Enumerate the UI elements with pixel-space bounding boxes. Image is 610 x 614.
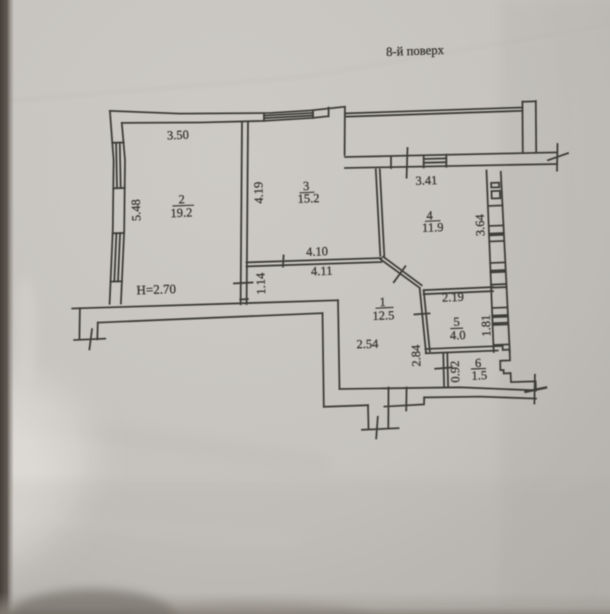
svg-text:3.64: 3.64: [473, 213, 488, 236]
svg-text:3.41: 3.41: [415, 173, 437, 188]
svg-text:2.84: 2.84: [409, 344, 424, 367]
svg-text:3.50: 3.50: [167, 128, 189, 143]
svg-text:H=2.70: H=2.70: [136, 281, 176, 297]
svg-text:4.0: 4.0: [450, 328, 466, 343]
svg-text:2: 2: [178, 192, 185, 206]
svg-text:1.5: 1.5: [471, 368, 487, 383]
svg-text:8-й поверх: 8-й поверх: [386, 43, 445, 59]
svg-text:1.14: 1.14: [253, 272, 268, 295]
svg-text:1.81: 1.81: [479, 315, 494, 337]
svg-text:5: 5: [453, 315, 460, 329]
svg-text:4.19: 4.19: [251, 182, 266, 204]
svg-text:5.48: 5.48: [129, 199, 144, 221]
svg-text:12.5: 12.5: [372, 308, 394, 323]
svg-text:11.9: 11.9: [422, 220, 444, 235]
svg-text:2.54: 2.54: [356, 337, 379, 352]
svg-text:2.19: 2.19: [442, 290, 464, 305]
svg-text:19.2: 19.2: [170, 205, 192, 220]
svg-text:4.10: 4.10: [306, 244, 328, 259]
svg-text:4.11: 4.11: [311, 264, 333, 279]
svg-text:15.2: 15.2: [297, 191, 319, 206]
svg-text:0.92: 0.92: [448, 361, 463, 383]
svg-text:1: 1: [379, 295, 386, 309]
